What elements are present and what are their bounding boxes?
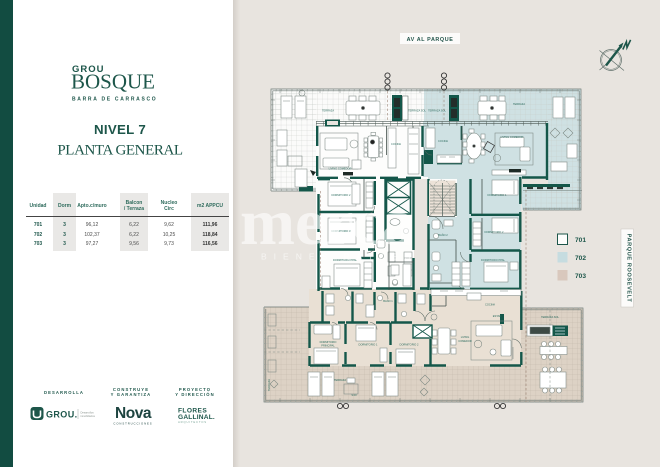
svg-text:COCINA: COCINA bbox=[391, 142, 401, 146]
svg-text:DORMITORIO PPAL: DORMITORIO PPAL bbox=[481, 258, 506, 262]
svg-text:9.00: 9.00 bbox=[351, 393, 357, 397]
svg-text:TERRAZA: TERRAZA bbox=[513, 102, 525, 106]
svg-text:TERRAZA SOL: TERRAZA SOL bbox=[408, 109, 426, 113]
svg-text:TERRAZA SOL: TERRAZA SOL bbox=[541, 315, 559, 319]
svg-text:COCINA: COCINA bbox=[485, 303, 495, 307]
svg-text:DORMITORIO 2: DORMITORIO 2 bbox=[400, 343, 420, 347]
svg-text:DORMITORIO 1: DORMITORIO 1 bbox=[359, 343, 379, 347]
svg-text:COCINA: COCINA bbox=[438, 139, 448, 143]
svg-text:NIVEL 7: NIVEL 7 bbox=[94, 122, 146, 137]
svg-text:PRINCIPAL: PRINCIPAL bbox=[321, 344, 335, 348]
svg-text:Nova: Nova bbox=[115, 405, 152, 422]
svg-text:ESTAR: ESTAR bbox=[493, 314, 502, 318]
svg-text:TERRAZA SOL: TERRAZA SOL bbox=[428, 109, 446, 113]
svg-text:LIVING: LIVING bbox=[461, 335, 470, 339]
svg-text:COMEDOR: COMEDOR bbox=[458, 339, 472, 343]
svg-text:Desarrollos: Desarrollos bbox=[81, 411, 95, 415]
svg-text:LIVING COMEDOR: LIVING COMEDOR bbox=[329, 167, 352, 171]
svg-text:BOSQUE: BOSQUE bbox=[71, 70, 155, 94]
svg-text:TERRAZA: TERRAZA bbox=[322, 109, 334, 113]
svg-text:BIENES RAICES: BIENES RAICES bbox=[261, 252, 417, 262]
svg-text:DORMITORIO 2: DORMITORIO 2 bbox=[485, 230, 505, 234]
svg-text:inmobiliarios: inmobiliarios bbox=[81, 414, 96, 418]
svg-text:TERRAZA: TERRAZA bbox=[267, 379, 271, 391]
svg-text:PLANTA GENERAL: PLANTA GENERAL bbox=[57, 142, 183, 158]
svg-text:701: 701 bbox=[575, 237, 586, 244]
svg-text:TERRAZA: TERRAZA bbox=[334, 378, 346, 382]
svg-text:PARQUE ROOSEVELT: PARQUE ROOSEVELT bbox=[626, 234, 632, 303]
svg-text:DORMITORIO: DORMITORIO bbox=[320, 340, 337, 344]
svg-text:AV AL PARQUE: AV AL PARQUE bbox=[407, 37, 454, 43]
svg-text:ARQUITECTOS: ARQUITECTOS bbox=[178, 420, 207, 424]
svg-text:LIVING COMEDOR: LIVING COMEDOR bbox=[501, 135, 524, 139]
svg-text:BARRA DE CARRASCO: BARRA DE CARRASCO bbox=[72, 97, 157, 103]
svg-text:GROU.: GROU. bbox=[46, 410, 78, 420]
svg-text:702: 702 bbox=[575, 255, 586, 262]
svg-text:703: 703 bbox=[575, 273, 586, 280]
svg-text:CONSTRUCCIONES: CONSTRUCCIONES bbox=[113, 422, 152, 426]
svg-text:DORMITORIO 1: DORMITORIO 1 bbox=[488, 193, 508, 197]
